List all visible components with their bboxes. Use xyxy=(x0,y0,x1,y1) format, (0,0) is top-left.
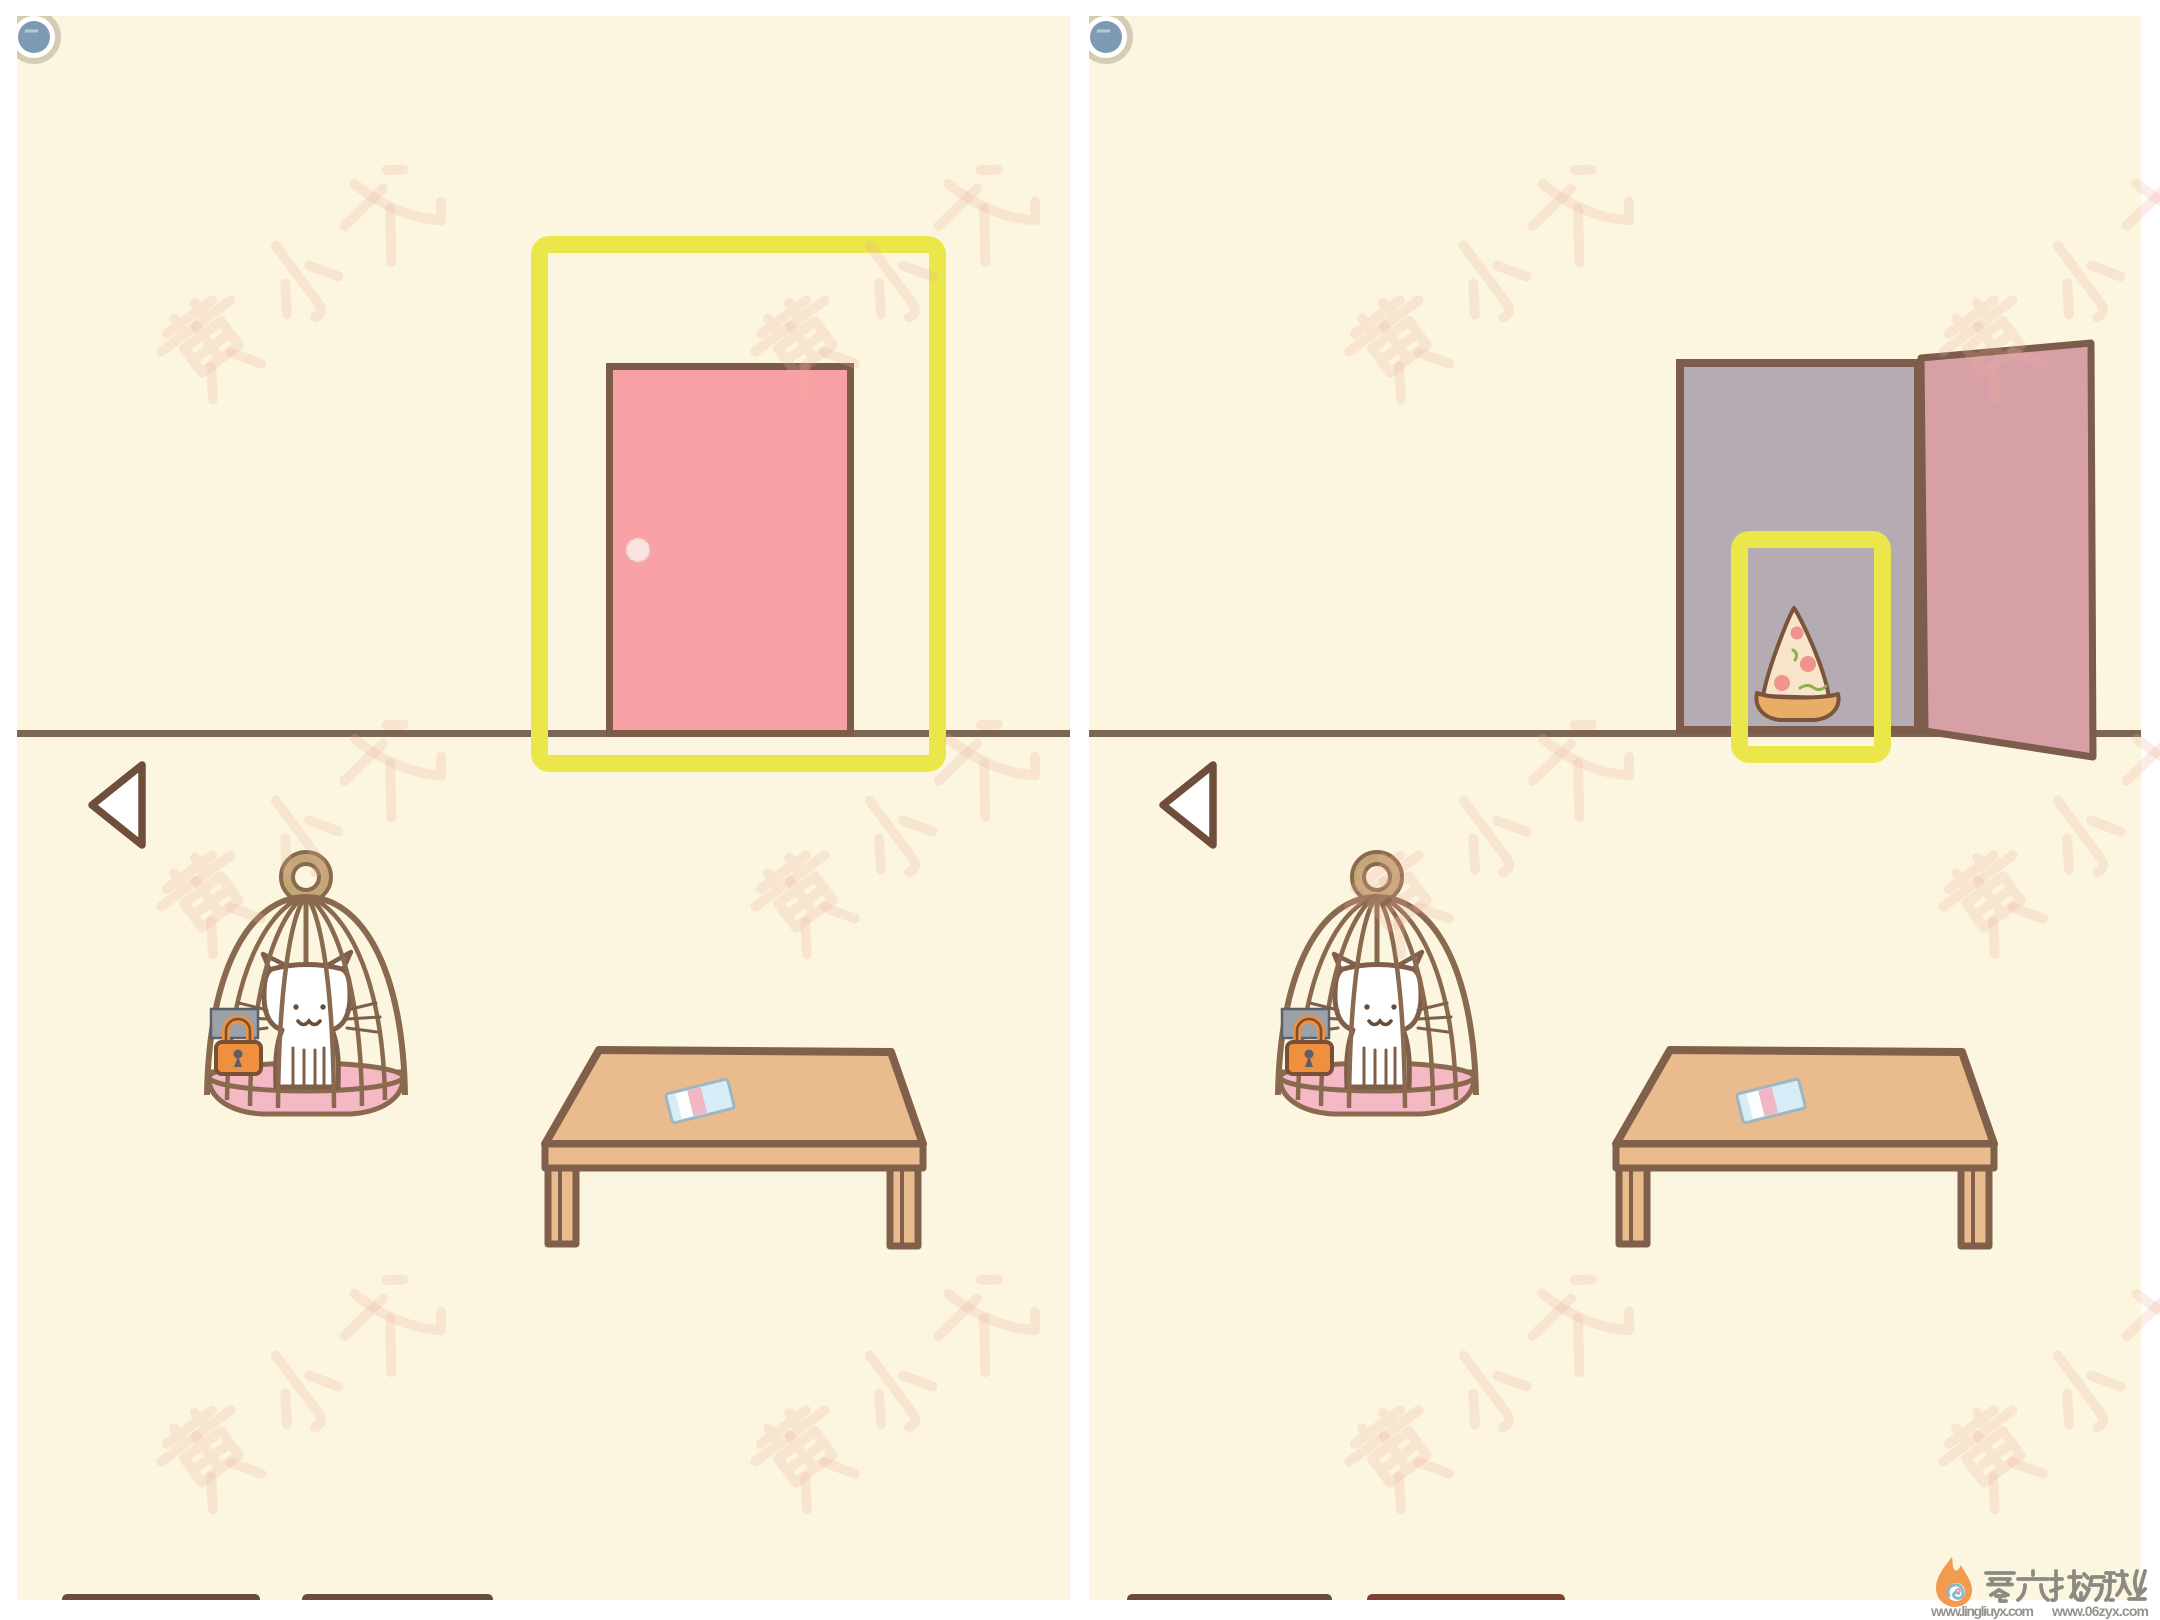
svg-text:www.lingliuyx.com: www.lingliuyx.com xyxy=(1930,1603,2034,1619)
svg-text:www.06zyx.com: www.06zyx.com xyxy=(2051,1603,2149,1619)
